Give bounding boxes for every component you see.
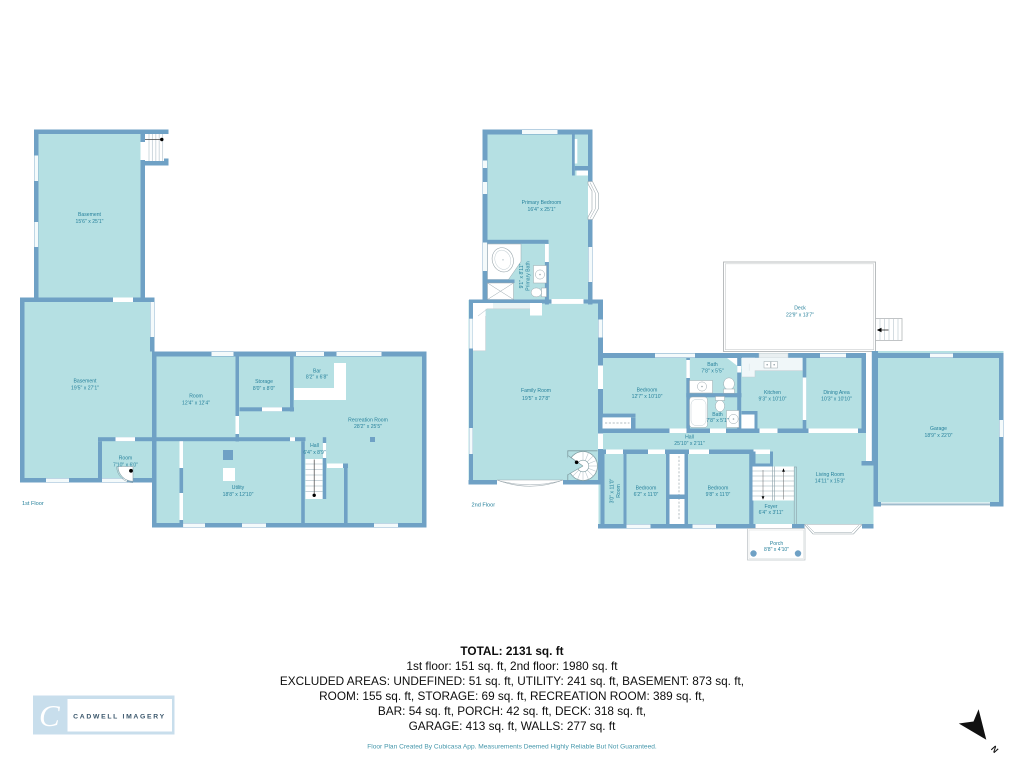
- svg-text:15'6" x 25'1": 15'6" x 25'1": [76, 219, 104, 225]
- svg-text:Bath: Bath: [712, 412, 723, 418]
- svg-text:6'4" x 3'11": 6'4" x 3'11": [759, 510, 784, 516]
- svg-text:Kitchen: Kitchen: [764, 390, 781, 396]
- svg-text:14'11" x 15'3": 14'11" x 15'3": [815, 478, 846, 484]
- svg-text:19'5" x 27'1": 19'5" x 27'1": [71, 386, 99, 392]
- svg-text:22'9" x 13'7": 22'9" x 13'7": [786, 312, 814, 318]
- svg-text:Deck: Deck: [794, 305, 806, 311]
- svg-text:Room: Room: [119, 455, 133, 461]
- svg-text:Hall: Hall: [685, 435, 694, 441]
- svg-text:Garage: Garage: [930, 426, 947, 432]
- svg-text:18'8" x 12'10": 18'8" x 12'10": [223, 492, 254, 498]
- svg-text:7'8" x 5'5": 7'8" x 5'5": [701, 368, 723, 374]
- svg-text:6'2" x 11'0": 6'2" x 11'0": [634, 492, 659, 498]
- svg-text:Utility: Utility: [232, 485, 245, 491]
- svg-text:Recreation Room: Recreation Room: [348, 418, 388, 424]
- svg-text:16'4" x 25'1": 16'4" x 25'1": [528, 207, 556, 213]
- svg-text:7'10" x 6'0": 7'10" x 6'0": [113, 463, 138, 469]
- svg-text:10'3" x 10'10": 10'3" x 10'10": [821, 397, 852, 403]
- svg-text:BAR: 54 sq. ft, PORCH: 42 sq.: BAR: 54 sq. ft, PORCH: 42 sq. ft, DECK: …: [378, 704, 646, 718]
- svg-text:Bar: Bar: [313, 368, 321, 374]
- svg-text:8'2" x 6'8": 8'2" x 6'8": [306, 375, 328, 381]
- svg-text:EXCLUDED AREAS: UNDEFINED: 51: EXCLUDED AREAS: UNDEFINED: 51 sq. ft, UT…: [280, 674, 744, 688]
- svg-text:Bath: Bath: [707, 362, 718, 368]
- svg-text:25'10" x 2'11": 25'10" x 2'11": [674, 441, 705, 447]
- svg-text:Room: Room: [616, 484, 622, 498]
- svg-text:ROOM: 155 sq. ft, STORAGE: 69: ROOM: 155 sq. ft, STORAGE: 69 sq. ft, RE…: [319, 689, 705, 703]
- svg-text:9'3" x 10'10": 9'3" x 10'10": [759, 397, 787, 403]
- svg-text:7'8" x 5'1": 7'8" x 5'1": [706, 418, 728, 424]
- svg-text:12'7" x 10'10": 12'7" x 10'10": [632, 394, 663, 400]
- svg-text:C: C: [39, 698, 60, 733]
- svg-text:18'9" x 22'0": 18'9" x 22'0": [925, 433, 953, 439]
- svg-text:28'2" x 25'5": 28'2" x 25'5": [354, 424, 382, 430]
- svg-text:8'8" x 4'10": 8'8" x 4'10": [764, 547, 789, 553]
- svg-text:Primary Bath: Primary Bath: [526, 261, 532, 291]
- svg-text:Basement: Basement: [78, 212, 102, 218]
- svg-text:GARAGE: 413 sq. ft, WALLS: 277: GARAGE: 413 sq. ft, WALLS: 277 sq. ft: [409, 719, 616, 733]
- svg-text:1st Floor: 1st Floor: [22, 501, 44, 507]
- svg-text:19'5" x 27'8": 19'5" x 27'8": [522, 396, 550, 402]
- svg-text:Family Room: Family Room: [521, 388, 551, 394]
- svg-text:Basement: Basement: [74, 378, 98, 384]
- svg-text:8'0" x 8'0": 8'0" x 8'0": [253, 386, 275, 392]
- svg-text:9'8" x 11'0": 9'8" x 11'0": [706, 492, 731, 498]
- svg-text:Bedroom: Bedroom: [636, 485, 657, 491]
- svg-text:Bedroom: Bedroom: [708, 485, 729, 491]
- svg-text:6'4" x 8'9": 6'4" x 8'9": [303, 450, 325, 456]
- svg-text:Bedroom: Bedroom: [637, 387, 658, 393]
- svg-text:1st floor: 151 sq. ft, 2nd flo: 1st floor: 151 sq. ft, 2nd floor: 1980 s…: [406, 659, 618, 673]
- svg-text:Dining Area: Dining Area: [823, 390, 850, 396]
- svg-text:Hall: Hall: [310, 443, 319, 449]
- svg-text:Storage: Storage: [255, 379, 273, 385]
- svg-text:CADWELL IMAGERY: CADWELL IMAGERY: [73, 714, 166, 721]
- svg-text:Room: Room: [189, 393, 203, 399]
- svg-text:9'1" x 8'11": 9'1" x 8'11": [519, 263, 525, 288]
- svg-text:Porch: Porch: [770, 541, 783, 547]
- svg-text:Floor Plan Created By Cubicasa: Floor Plan Created By Cubicasa App. Meas…: [367, 744, 657, 751]
- svg-text:2nd Floor: 2nd Floor: [472, 503, 496, 509]
- svg-text:Foyer: Foyer: [764, 504, 777, 510]
- svg-text:3'0" x 11'0": 3'0" x 11'0": [610, 478, 616, 503]
- svg-text:12'4" x 12'4": 12'4" x 12'4": [182, 400, 210, 406]
- svg-text:Primary Bedroom: Primary Bedroom: [522, 200, 562, 206]
- svg-text:TOTAL: 2131 sq. ft: TOTAL: 2131 sq. ft: [460, 644, 563, 658]
- svg-text:Living Room: Living Room: [816, 472, 844, 478]
